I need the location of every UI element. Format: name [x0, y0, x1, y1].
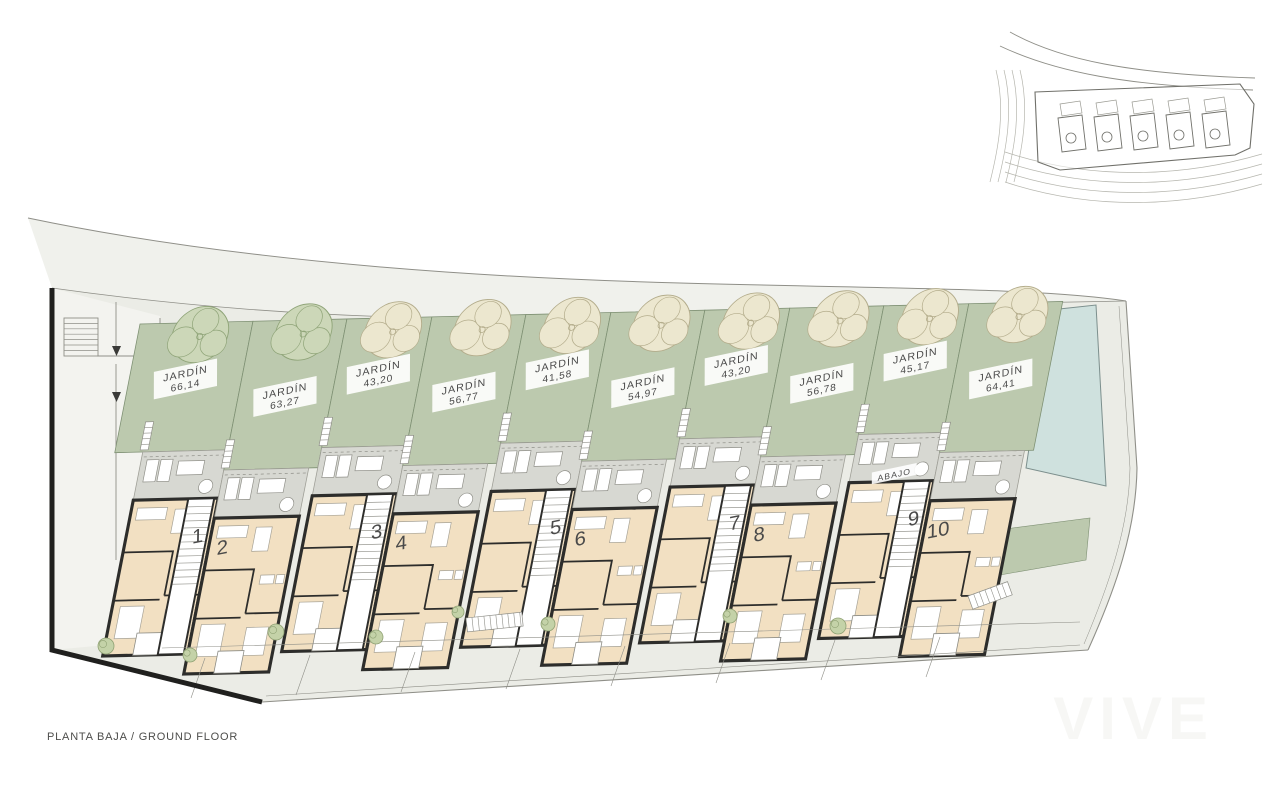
- contour-line: [998, 70, 1009, 182]
- sofa: [672, 494, 704, 507]
- outdoor-table: [794, 465, 823, 480]
- patio-inset: [214, 651, 244, 674]
- unit-number: 1: [192, 525, 204, 549]
- patio-inset: [930, 633, 960, 656]
- unit-number: 10: [927, 518, 950, 544]
- unit-number-text: 10: [927, 518, 950, 544]
- patio-inset: [393, 646, 423, 669]
- unit-number-text: 1: [192, 525, 204, 549]
- location-minimap: [990, 32, 1262, 203]
- minimap-road: [1010, 32, 1255, 78]
- unit-number: 6: [574, 528, 586, 552]
- unit-number-text: 5: [550, 516, 562, 540]
- bush-icon: [183, 648, 197, 662]
- bath-fixture: [796, 562, 812, 571]
- outdoor-table: [615, 470, 644, 485]
- unit-number-text: 8: [753, 523, 765, 547]
- unit-number-text: 2: [216, 536, 228, 560]
- housing-row: JARDÍN66,14JARDÍN63,27JARDÍN43,20JARDÍN5…: [71, 285, 1066, 676]
- sofa: [574, 517, 606, 530]
- outdoor-table: [973, 461, 1002, 476]
- bush-icon: [369, 630, 383, 644]
- watermark-logo: VIVE: [1053, 684, 1214, 753]
- outdoor-table: [713, 447, 742, 462]
- sofa: [135, 507, 167, 520]
- sofa: [216, 525, 248, 538]
- unit-number: 2: [216, 536, 228, 560]
- outdoor-table: [436, 474, 465, 489]
- unit-number: 3: [371, 521, 383, 545]
- sofa: [493, 499, 525, 512]
- walkway-stairs: [64, 318, 98, 356]
- unit-number: 8: [753, 523, 765, 547]
- unit-number-text: 3: [371, 521, 383, 545]
- unit-number-text: 4: [395, 532, 407, 556]
- outdoor-table: [176, 460, 205, 475]
- bath-fixture: [454, 570, 464, 579]
- floor-plan-svg: JARDÍN66,14JARDÍN63,27JARDÍN43,20JARDÍN5…: [0, 0, 1280, 800]
- outdoor-table: [355, 456, 384, 471]
- minimap-site-outline: [1035, 84, 1254, 170]
- bath-fixture: [633, 566, 643, 575]
- sofa: [851, 490, 883, 503]
- patio-inset: [572, 642, 602, 665]
- sofa: [314, 503, 346, 516]
- unit-number-text: 6: [574, 528, 586, 552]
- unit-number: 5: [550, 516, 562, 540]
- bath-fixture: [991, 557, 1001, 566]
- unit-number-text: 7: [729, 512, 741, 536]
- bush-icon: [541, 617, 555, 631]
- outdoor-table: [892, 443, 921, 458]
- unit-number: 4: [395, 532, 407, 556]
- unit-number: 7: [729, 512, 741, 536]
- unit-number: 9: [908, 508, 920, 532]
- bath-fixture: [438, 570, 454, 579]
- contour-line: [990, 70, 1001, 182]
- outdoor-table: [534, 452, 563, 467]
- unit-number-text: 9: [908, 508, 920, 532]
- bath-fixture: [812, 561, 822, 570]
- bath-fixture: [259, 575, 275, 584]
- patio-inset: [751, 637, 781, 660]
- bath-fixture: [617, 566, 633, 575]
- bush-icon: [723, 609, 737, 623]
- sofa: [395, 521, 427, 534]
- outdoor-table: [257, 478, 286, 493]
- floor-plan-canvas: JARDÍN66,14JARDÍN63,27JARDÍN43,20JARDÍN5…: [0, 0, 1280, 800]
- floor-title: PLANTA BAJA / GROUND FLOOR: [47, 731, 238, 743]
- sofa: [753, 512, 785, 525]
- bath-fixture: [975, 557, 991, 566]
- bath-fixture: [275, 575, 285, 584]
